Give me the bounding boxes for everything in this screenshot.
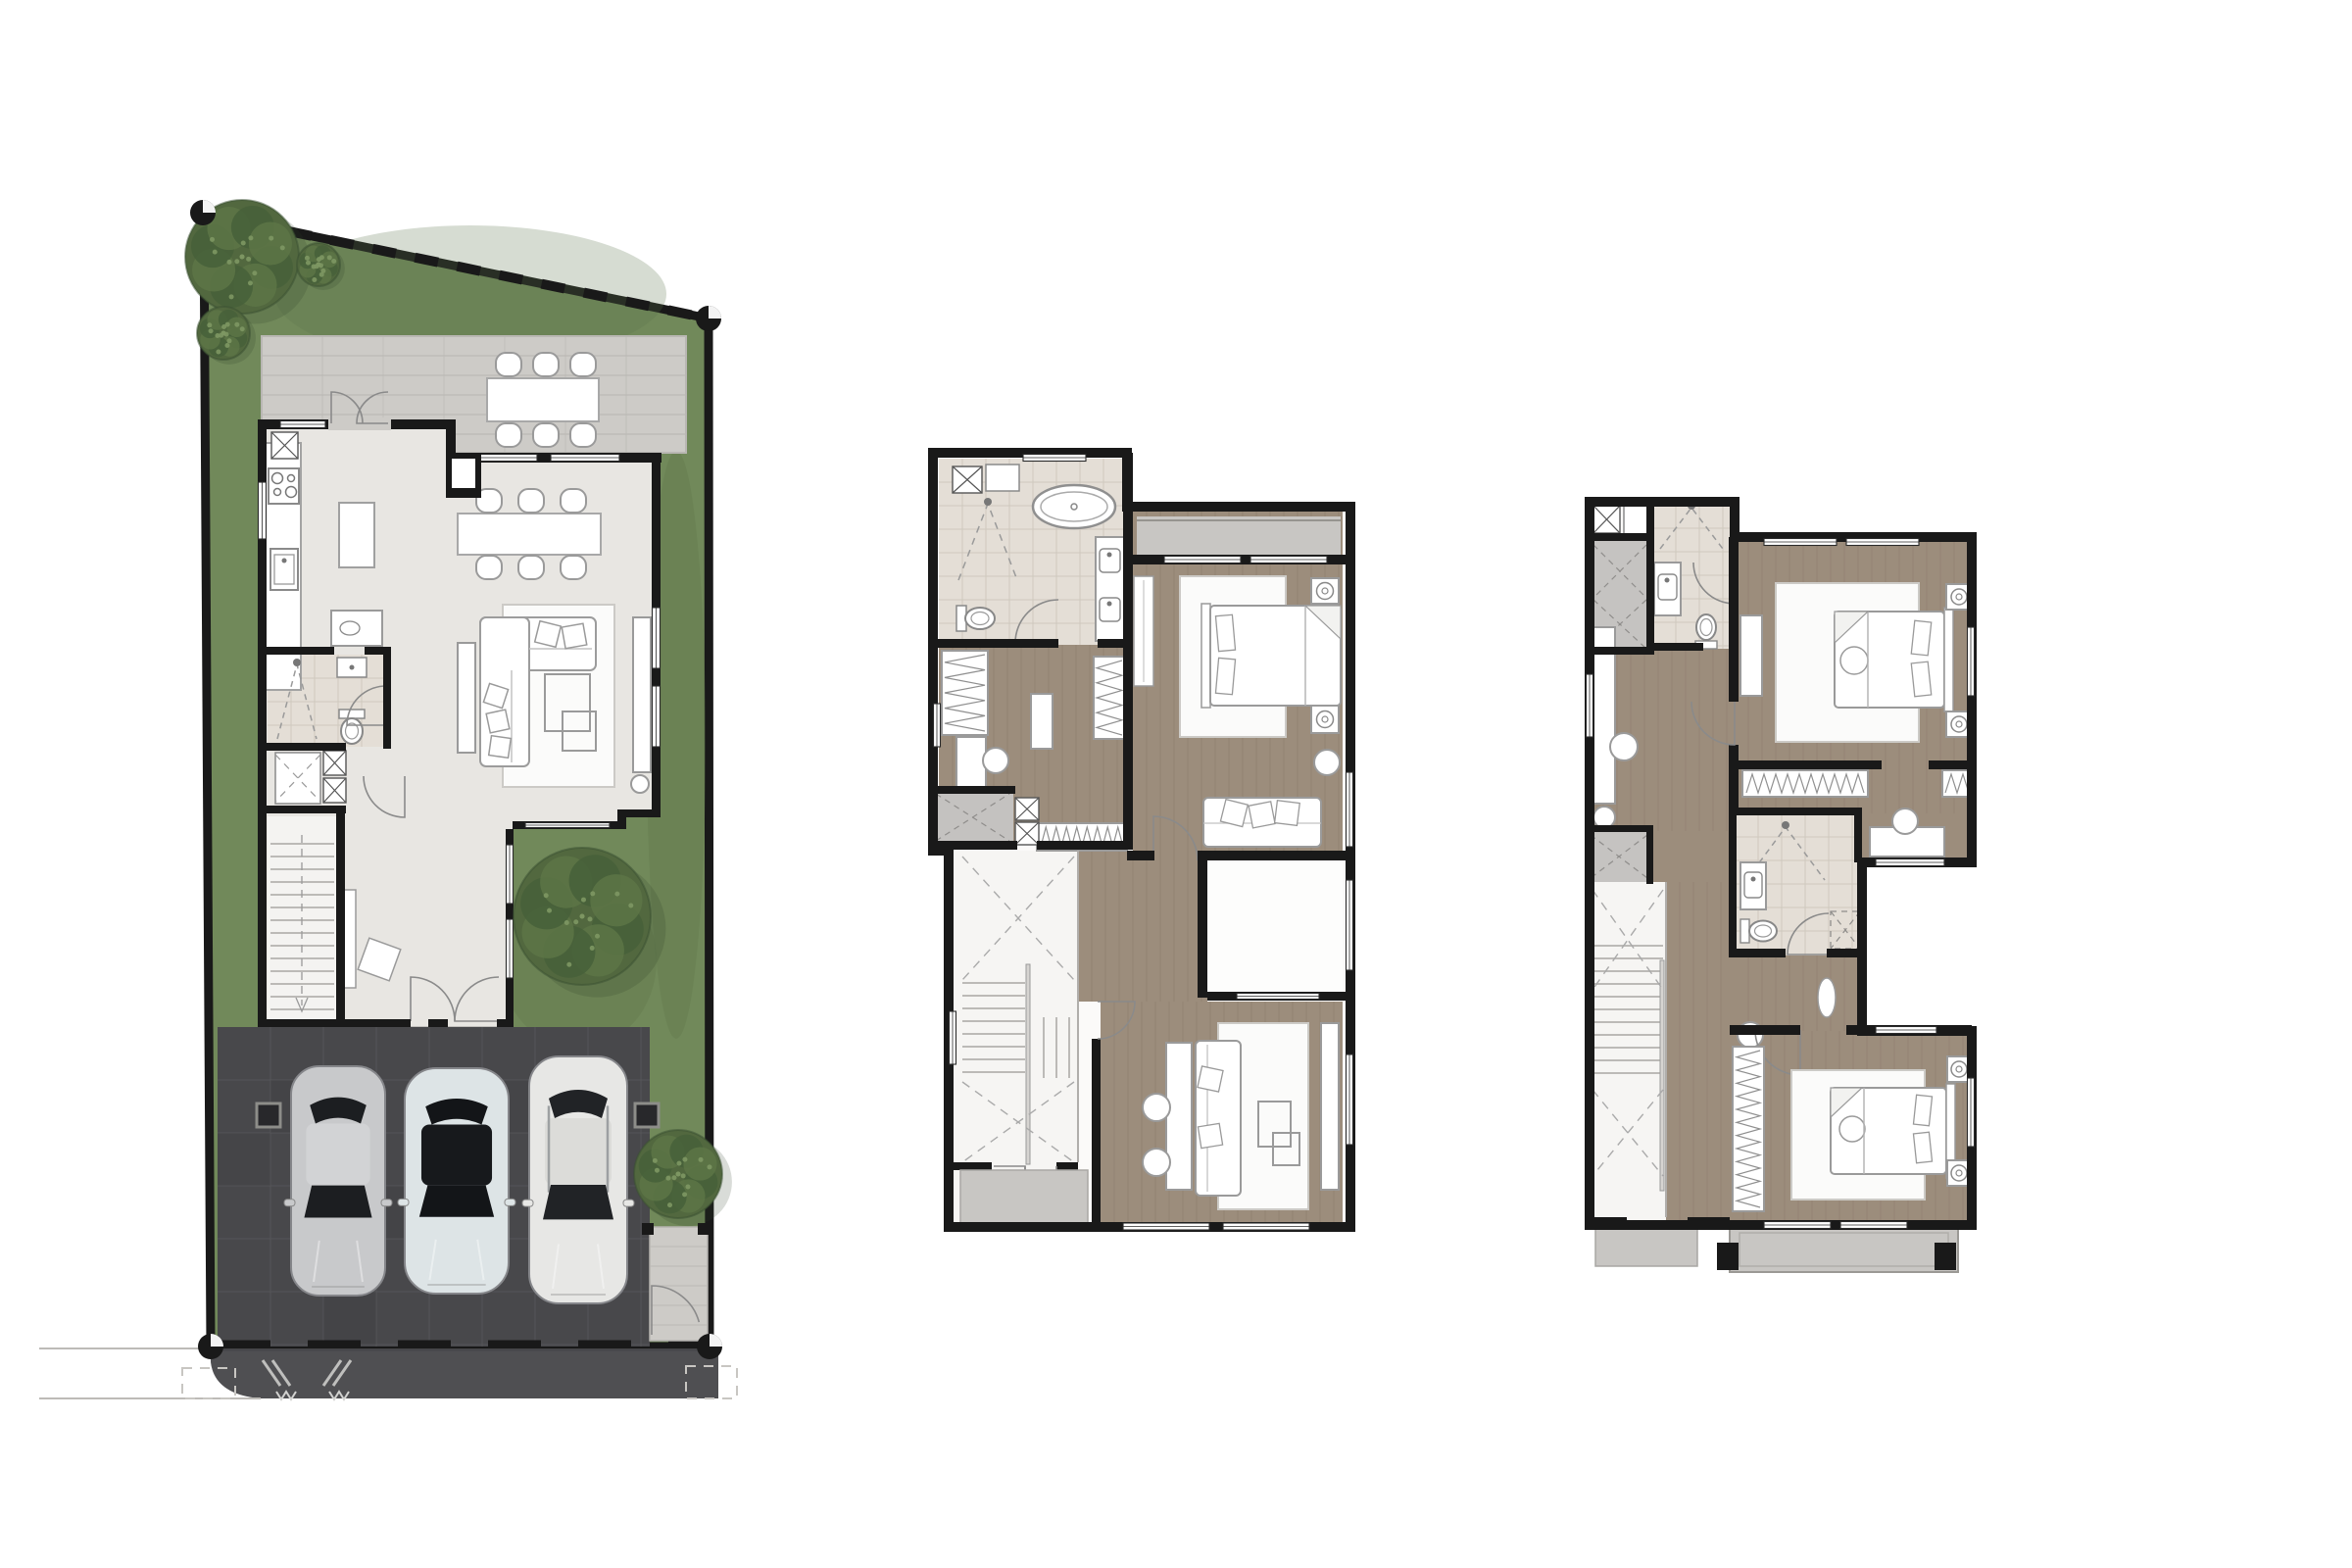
car-sedan (284, 1066, 392, 1296)
pillow (1913, 1132, 1932, 1163)
vanity (331, 611, 382, 646)
dining-chair (518, 489, 544, 513)
mirror (381, 1200, 392, 1206)
kitchen-island (339, 503, 374, 567)
window (1764, 539, 1837, 546)
void (1207, 862, 1343, 994)
cabinet (986, 465, 1019, 491)
shaft (323, 778, 346, 803)
console (1818, 978, 1836, 1017)
floor-plans-stage (0, 0, 2352, 1568)
window (1846, 539, 1919, 546)
window (653, 608, 661, 668)
console (1321, 1023, 1339, 1190)
window (950, 1011, 956, 1064)
stool (1143, 1149, 1170, 1176)
windshield (419, 1186, 494, 1217)
lamp (1951, 1165, 1967, 1181)
mirror (284, 1200, 295, 1206)
dressing-table (956, 737, 986, 792)
pillow (1249, 802, 1275, 828)
mirror (505, 1199, 515, 1205)
second-floor-plan (933, 453, 1353, 1230)
window (1223, 1223, 1309, 1230)
window (1587, 674, 1593, 737)
dining-chair (518, 556, 544, 579)
outdoor-chair (533, 423, 559, 447)
side-table (631, 775, 649, 793)
toilet (1749, 921, 1777, 942)
pillow (1275, 801, 1300, 826)
shaft (323, 751, 346, 775)
porch-roof (1595, 1225, 1697, 1266)
stair-railing (1660, 960, 1664, 1191)
windshield (543, 1185, 613, 1219)
lamp (1951, 589, 1967, 605)
outdoor-chair (496, 423, 521, 447)
outdoor-chair (533, 353, 559, 376)
side-walkway (650, 1227, 708, 1341)
console (633, 617, 651, 772)
mirror (623, 1200, 634, 1206)
lamp (1951, 716, 1967, 732)
pillow (562, 623, 586, 648)
mirror (398, 1199, 409, 1205)
dining-chair (476, 556, 502, 579)
window (1347, 772, 1353, 847)
shower-head (984, 498, 992, 506)
survey-marker (697, 1334, 722, 1359)
stove (269, 468, 299, 504)
window (1764, 1222, 1831, 1229)
window (1968, 1078, 1975, 1147)
window (1876, 859, 1944, 866)
window (653, 686, 661, 747)
closet-island (1031, 694, 1053, 749)
window (1237, 994, 1319, 1000)
survey-marker (198, 1334, 223, 1359)
pillow (489, 736, 512, 759)
window (934, 704, 941, 747)
shaft (1593, 506, 1620, 533)
sofa (1196, 1041, 1241, 1196)
pillow (1220, 800, 1248, 827)
floor-plans-canvas (0, 0, 2352, 1568)
window (507, 845, 514, 904)
car-hatchback (398, 1068, 515, 1294)
tv-console (458, 643, 475, 753)
stool (1143, 1094, 1170, 1121)
pillow (1215, 614, 1235, 651)
dining-chair (561, 556, 586, 579)
mirror (522, 1200, 533, 1206)
chair (1610, 733, 1638, 760)
shaft (953, 466, 982, 493)
lamp (1317, 711, 1334, 728)
window (507, 919, 514, 978)
stool (1593, 807, 1615, 828)
window (259, 482, 267, 539)
window (1347, 1054, 1353, 1145)
drain (257, 1103, 280, 1127)
balcony (1137, 516, 1341, 556)
shaft (1015, 822, 1039, 845)
roof (545, 1118, 612, 1185)
drain (635, 1103, 659, 1127)
shaft (271, 432, 298, 459)
first-floor-site-plan (39, 200, 737, 1399)
window (1840, 1222, 1907, 1229)
window (1164, 557, 1241, 563)
window (1123, 1223, 1209, 1230)
window (280, 421, 325, 428)
outdoor-chair (496, 353, 521, 376)
round-pillow (1840, 647, 1868, 674)
headboard (1944, 608, 1953, 711)
shower-head (293, 659, 301, 666)
closet (275, 753, 320, 804)
stair-railing (1026, 964, 1030, 1164)
survey-marker (190, 200, 216, 225)
toilet (341, 718, 363, 744)
third-floor-plan (1586, 502, 1975, 1272)
windshield (304, 1186, 371, 1218)
round-pillow (1839, 1116, 1865, 1142)
headboard (1201, 604, 1210, 708)
shower-head (1782, 821, 1789, 829)
window (525, 823, 610, 828)
window (1347, 880, 1353, 970)
roof (306, 1124, 369, 1186)
window (1876, 1027, 1936, 1034)
pillow (1913, 1095, 1932, 1126)
pillow (1215, 658, 1235, 694)
roof (421, 1125, 492, 1186)
window (1250, 557, 1327, 563)
dining-chair (561, 489, 586, 513)
lamp (1317, 583, 1334, 600)
shaft (1015, 798, 1039, 820)
porch-roof (960, 1170, 1088, 1227)
chair (1892, 808, 1918, 834)
outdoor-chair (570, 423, 596, 447)
car-suv (522, 1056, 634, 1303)
dining-table (458, 514, 601, 555)
pillow (1911, 620, 1931, 656)
pillow (1198, 1066, 1223, 1092)
side-table (1314, 750, 1340, 775)
pillow (1198, 1123, 1222, 1148)
lamp (1951, 1061, 1967, 1077)
window (551, 455, 619, 462)
stool (983, 748, 1008, 773)
outdoor-chair (570, 353, 596, 376)
pillow (1911, 661, 1931, 697)
console (1740, 615, 1762, 696)
pillow (535, 621, 562, 648)
pillow (486, 710, 510, 733)
window (1023, 455, 1086, 462)
survey-marker (696, 306, 721, 331)
window (1968, 627, 1975, 696)
toilet (965, 608, 995, 629)
outdoor-dining-table (487, 378, 599, 421)
